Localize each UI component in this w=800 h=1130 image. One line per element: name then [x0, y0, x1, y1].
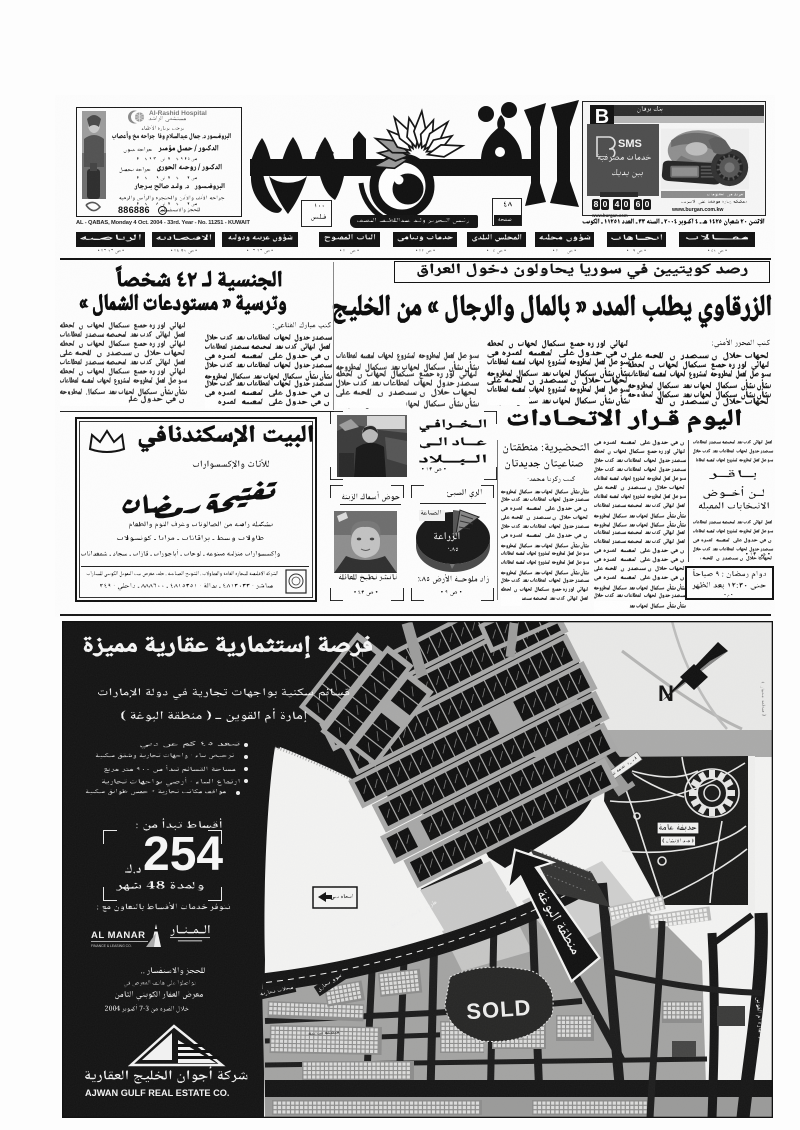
svg-text:AL MANAR: AL MANAR — [91, 930, 146, 941]
svg-text:FINANCE & LEASING CO.: FINANCE & LEASING CO. — [91, 944, 132, 948]
